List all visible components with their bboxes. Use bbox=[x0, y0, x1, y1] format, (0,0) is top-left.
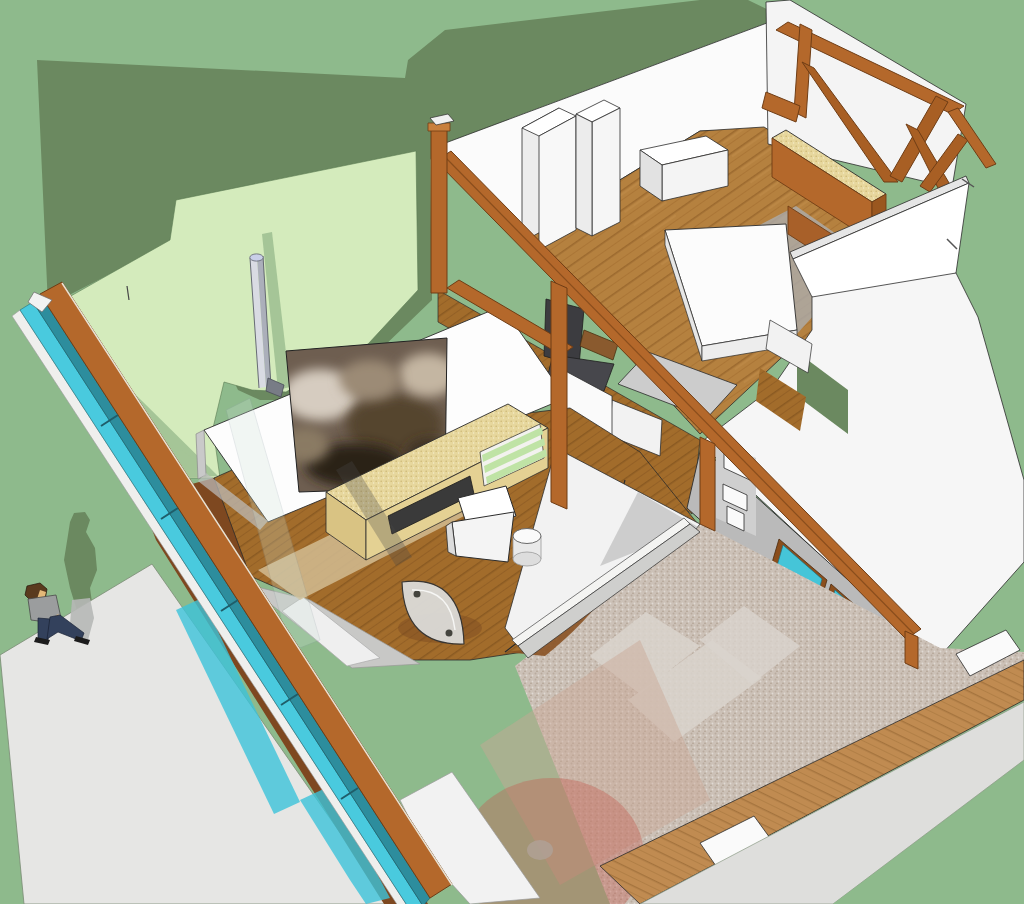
post-b bbox=[551, 281, 567, 509]
wardrobe-b-side bbox=[576, 114, 592, 236]
table-foot-1 bbox=[414, 591, 421, 598]
wardrobe-a-front bbox=[539, 116, 576, 250]
sketchup-3d-view bbox=[0, 0, 1024, 904]
wardrobe-b-front bbox=[592, 108, 620, 236]
media-wall-edge bbox=[196, 430, 206, 479]
render-canvas bbox=[0, 0, 1024, 904]
cylinder-table-top bbox=[513, 529, 541, 544]
table-foot-2 bbox=[446, 630, 453, 637]
post-c bbox=[700, 437, 715, 531]
cylinder-table-bottom bbox=[513, 552, 541, 566]
post-a bbox=[431, 130, 447, 293]
red-rug-center bbox=[527, 840, 553, 860]
chimney-pole-top bbox=[250, 254, 263, 261]
paint-patch-7 bbox=[340, 360, 400, 400]
post-d bbox=[905, 631, 918, 669]
